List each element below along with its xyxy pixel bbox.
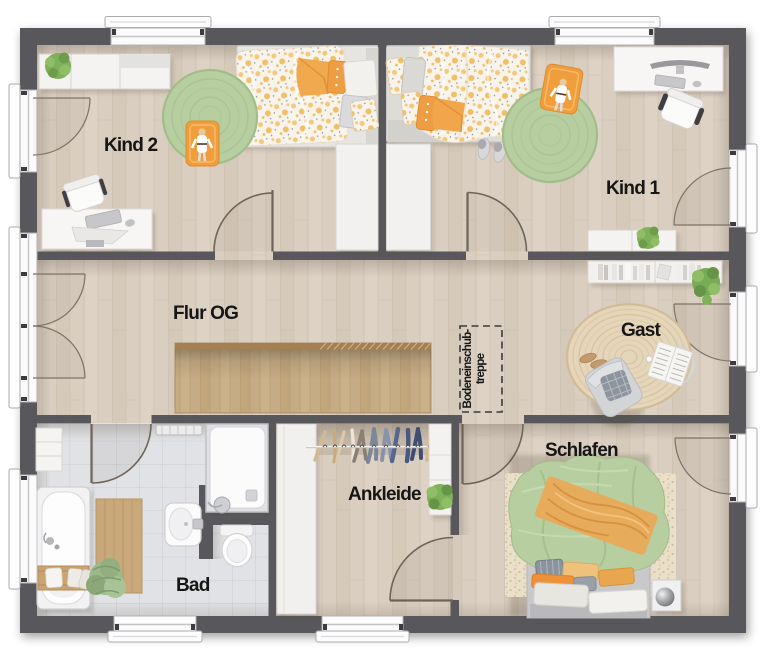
svg-text:treppe: treppe <box>475 353 487 384</box>
svg-text:Bodeneinschub-: Bodeneinschub- <box>462 329 474 409</box>
svg-text:Gast: Gast <box>621 320 662 341</box>
svg-text:Flur OG: Flur OG <box>173 303 238 324</box>
svg-text:Kind 2: Kind 2 <box>104 135 157 156</box>
svg-text:Schlafen: Schlafen <box>545 440 618 461</box>
svg-text:Ankleide: Ankleide <box>348 484 421 505</box>
svg-text:Kind 1: Kind 1 <box>606 178 660 199</box>
svg-text:Bad: Bad <box>176 575 210 596</box>
